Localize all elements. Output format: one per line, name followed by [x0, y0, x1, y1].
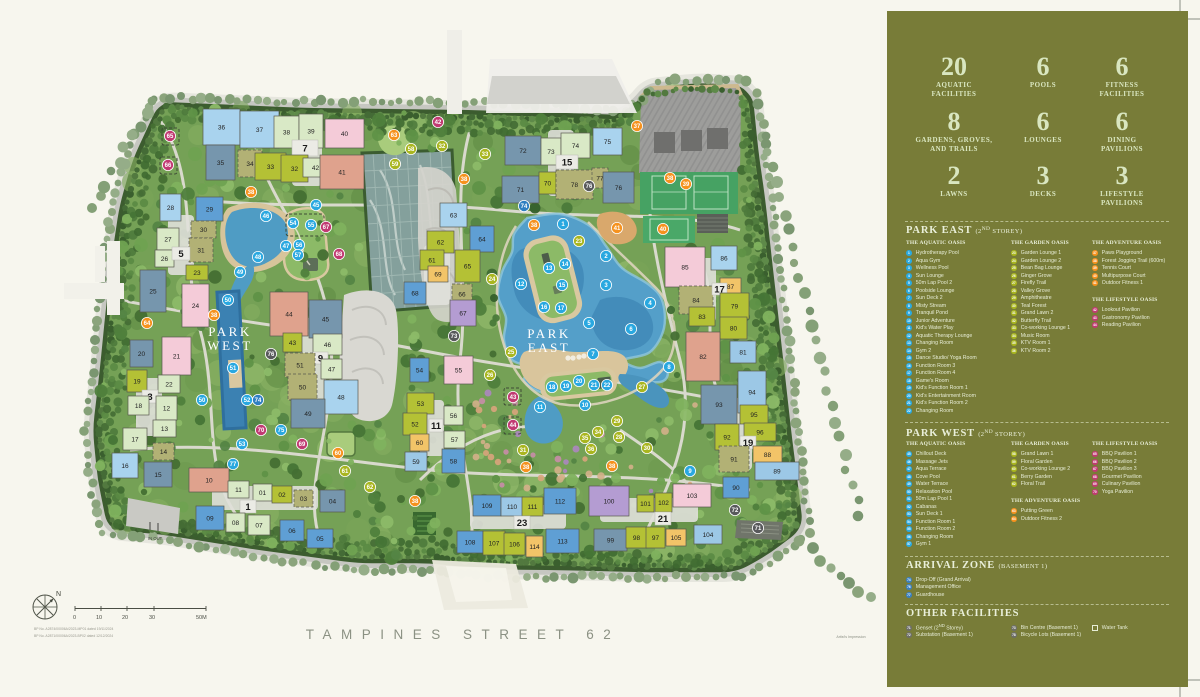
svg-text:IN OUT: IN OUT: [148, 536, 163, 541]
svg-text:49: 49: [304, 411, 312, 418]
svg-text:73: 73: [547, 149, 555, 156]
svg-text:72: 72: [519, 148, 527, 155]
svg-text:BP No. A2871/00006A/2023-BP02: BP No. A2871/00006A/2023-BP02 dated 12/1…: [34, 634, 113, 638]
svg-text:31: 31: [197, 247, 205, 254]
svg-text:98: 98: [633, 535, 641, 542]
svg-text:53: 53: [417, 401, 425, 408]
svg-text:69: 69: [434, 271, 442, 278]
svg-text:14: 14: [562, 262, 569, 268]
svg-text:73: 73: [451, 334, 458, 340]
svg-text:30: 30: [644, 446, 651, 452]
svg-text:38: 38: [609, 464, 616, 470]
svg-text:27: 27: [639, 385, 646, 391]
svg-text:54: 54: [290, 221, 297, 227]
svg-text:107: 107: [489, 540, 500, 547]
svg-text:70: 70: [258, 428, 265, 434]
svg-text:105: 105: [671, 535, 682, 542]
svg-text:97: 97: [652, 535, 660, 542]
svg-text:28: 28: [167, 205, 175, 212]
svg-text:50: 50: [299, 384, 307, 391]
svg-text:09: 09: [206, 515, 214, 522]
svg-text:TAMPINES STREET 62: TAMPINES STREET 62: [306, 627, 621, 642]
svg-text:20: 20: [138, 351, 146, 358]
svg-text:60: 60: [416, 440, 424, 447]
svg-text:52: 52: [244, 398, 251, 404]
svg-text:PARK: PARK: [208, 324, 251, 339]
svg-text:93: 93: [715, 402, 723, 409]
svg-text:23: 23: [193, 270, 201, 277]
svg-text:30: 30: [200, 227, 208, 234]
svg-text:26: 26: [161, 256, 169, 263]
svg-text:33: 33: [482, 152, 489, 158]
svg-text:79: 79: [731, 303, 739, 310]
svg-text:102: 102: [658, 500, 669, 507]
svg-text:77: 77: [230, 462, 237, 468]
svg-text:07: 07: [255, 522, 263, 529]
svg-text:05: 05: [316, 536, 324, 543]
svg-text:74: 74: [255, 398, 262, 404]
svg-text:24: 24: [489, 277, 496, 283]
svg-text:51: 51: [296, 362, 304, 369]
svg-text:94: 94: [748, 389, 756, 396]
svg-text:86: 86: [720, 255, 728, 262]
svg-text:34: 34: [595, 430, 602, 436]
svg-text:88: 88: [764, 452, 772, 459]
svg-text:61: 61: [428, 257, 436, 264]
svg-text:12: 12: [163, 405, 171, 412]
svg-text:33: 33: [267, 164, 275, 171]
svg-text:66: 66: [165, 163, 172, 169]
svg-text:71: 71: [517, 187, 525, 194]
svg-text:78: 78: [571, 182, 579, 189]
svg-text:29: 29: [614, 419, 621, 425]
svg-text:65: 65: [464, 263, 472, 270]
svg-text:91: 91: [730, 456, 738, 463]
svg-text:58: 58: [408, 147, 415, 153]
svg-text:11: 11: [235, 487, 242, 494]
svg-text:76: 76: [615, 185, 623, 192]
svg-text:13: 13: [161, 426, 169, 433]
svg-text:76: 76: [586, 184, 593, 190]
svg-text:5: 5: [178, 249, 184, 260]
svg-text:15: 15: [154, 472, 162, 479]
svg-text:55: 55: [308, 223, 315, 229]
svg-text:64: 64: [144, 321, 151, 327]
svg-text:16: 16: [121, 463, 129, 470]
svg-text:16: 16: [541, 305, 548, 311]
svg-text:47: 47: [328, 366, 336, 373]
svg-text:15: 15: [562, 157, 573, 168]
svg-text:75: 75: [604, 139, 612, 146]
svg-text:20: 20: [576, 379, 583, 385]
svg-text:44: 44: [285, 311, 293, 318]
svg-text:38: 38: [531, 223, 538, 229]
svg-text:10: 10: [205, 477, 213, 484]
svg-text:68: 68: [411, 290, 419, 297]
svg-text:100: 100: [604, 498, 615, 505]
svg-text:62: 62: [437, 239, 445, 246]
svg-text:80: 80: [730, 325, 738, 332]
svg-text:41: 41: [338, 169, 346, 176]
svg-text:109: 109: [482, 503, 493, 510]
svg-text:40: 40: [341, 131, 349, 138]
svg-text:Artist's Impression: Artist's Impression: [836, 635, 865, 639]
svg-text:51: 51: [230, 366, 237, 372]
svg-text:84: 84: [692, 297, 700, 304]
svg-text:06: 06: [288, 528, 296, 535]
svg-text:92: 92: [723, 434, 731, 441]
svg-text:37: 37: [256, 127, 264, 134]
svg-text:38: 38: [211, 313, 218, 319]
svg-text:32: 32: [439, 144, 446, 150]
svg-text:66: 66: [458, 291, 466, 298]
svg-text:28: 28: [616, 435, 623, 441]
svg-text:41: 41: [614, 226, 621, 232]
svg-text:17: 17: [558, 306, 565, 312]
svg-text:38: 38: [523, 465, 530, 471]
svg-text:64: 64: [478, 236, 486, 243]
svg-text:69: 69: [299, 442, 306, 448]
svg-text:67: 67: [323, 225, 330, 231]
svg-text:90: 90: [732, 485, 740, 492]
svg-text:108: 108: [465, 539, 476, 546]
svg-text:7: 7: [302, 143, 307, 154]
svg-text:114: 114: [529, 544, 540, 551]
svg-text:1: 1: [245, 502, 251, 513]
svg-text:39: 39: [307, 128, 315, 135]
svg-text:67: 67: [459, 310, 467, 317]
svg-text:76: 76: [268, 352, 275, 358]
svg-text:83: 83: [698, 314, 706, 321]
svg-text:30: 30: [149, 615, 155, 621]
svg-text:113: 113: [557, 538, 568, 545]
svg-text:75: 75: [278, 428, 285, 434]
svg-text:03: 03: [300, 496, 308, 503]
svg-text:50: 50: [225, 298, 232, 304]
svg-text:45: 45: [313, 203, 320, 209]
svg-text:11: 11: [431, 421, 442, 432]
svg-text:10: 10: [582, 403, 589, 409]
svg-text:22: 22: [604, 383, 611, 389]
svg-text:N: N: [56, 591, 61, 598]
svg-text:25: 25: [149, 288, 157, 295]
svg-text:44: 44: [510, 423, 517, 429]
svg-text:18: 18: [135, 403, 143, 410]
svg-text:46: 46: [324, 342, 332, 349]
svg-text:19: 19: [133, 378, 141, 385]
svg-text:36: 36: [588, 447, 595, 453]
svg-text:46: 46: [263, 214, 270, 220]
svg-text:17: 17: [131, 436, 139, 443]
svg-text:65: 65: [167, 134, 174, 140]
svg-text:60: 60: [335, 451, 342, 457]
svg-text:62: 62: [367, 485, 374, 491]
svg-text:0: 0: [73, 615, 76, 621]
svg-text:59: 59: [392, 162, 399, 168]
svg-text:56: 56: [450, 413, 458, 420]
svg-text:02: 02: [278, 492, 286, 499]
svg-text:50M: 50M: [196, 615, 207, 621]
svg-text:42: 42: [312, 165, 320, 172]
svg-text:14: 14: [160, 449, 168, 456]
svg-text:70: 70: [544, 180, 552, 187]
svg-text:WEST: WEST: [207, 338, 252, 353]
svg-text:54: 54: [416, 367, 424, 374]
svg-text:34: 34: [246, 161, 254, 168]
svg-text:11: 11: [537, 405, 544, 411]
svg-text:21: 21: [173, 353, 181, 360]
svg-text:58: 58: [450, 458, 458, 465]
svg-text:61: 61: [342, 469, 349, 475]
svg-text:55: 55: [455, 367, 463, 374]
svg-text:95: 95: [750, 412, 758, 419]
svg-text:74: 74: [572, 143, 580, 150]
svg-text:35: 35: [582, 436, 589, 442]
svg-text:85: 85: [681, 264, 689, 271]
svg-text:63: 63: [391, 133, 398, 139]
svg-text:32: 32: [291, 166, 299, 173]
svg-text:21: 21: [591, 383, 598, 389]
svg-text:50: 50: [199, 398, 206, 404]
svg-text:111: 111: [528, 504, 538, 511]
svg-text:112: 112: [555, 498, 566, 505]
svg-text:63: 63: [450, 212, 458, 219]
svg-text:38: 38: [667, 176, 674, 182]
svg-text:48: 48: [255, 255, 262, 261]
svg-text:38: 38: [283, 129, 291, 136]
svg-text:74: 74: [521, 204, 528, 210]
svg-text:38: 38: [412, 499, 419, 505]
svg-text:101: 101: [640, 501, 651, 508]
svg-text:42: 42: [435, 120, 442, 126]
svg-text:08: 08: [232, 520, 240, 527]
svg-text:36: 36: [218, 124, 226, 131]
svg-text:39: 39: [683, 182, 690, 188]
svg-text:68: 68: [336, 252, 343, 258]
svg-text:52: 52: [411, 421, 419, 428]
svg-text:04: 04: [329, 498, 337, 505]
svg-text:35: 35: [217, 160, 225, 167]
svg-text:47: 47: [283, 244, 290, 250]
svg-text:38: 38: [248, 190, 255, 196]
svg-text:24: 24: [192, 303, 200, 310]
svg-text:29: 29: [206, 206, 214, 213]
svg-text:43: 43: [289, 340, 297, 347]
svg-text:89: 89: [773, 468, 781, 475]
svg-text:53: 53: [239, 442, 246, 448]
svg-text:110: 110: [507, 504, 518, 511]
svg-text:01: 01: [259, 490, 267, 497]
svg-text:BP No. A2874/00006A/2023-MP01: BP No. A2874/00006A/2023-MP01 dated 19/1…: [34, 627, 114, 631]
svg-text:13: 13: [546, 266, 553, 272]
svg-text:22: 22: [165, 381, 173, 388]
svg-text:19: 19: [563, 384, 570, 390]
svg-text:40: 40: [660, 227, 667, 233]
svg-text:81: 81: [739, 349, 747, 356]
svg-text:21: 21: [658, 514, 669, 525]
svg-text:71: 71: [755, 526, 762, 532]
svg-text:96: 96: [756, 429, 764, 436]
svg-text:23: 23: [576, 239, 583, 245]
svg-text:59: 59: [412, 459, 420, 466]
svg-text:15: 15: [559, 283, 566, 289]
svg-text:56: 56: [296, 243, 303, 249]
svg-text:27: 27: [164, 236, 172, 243]
svg-text:99: 99: [607, 537, 615, 544]
svg-text:72: 72: [732, 508, 739, 514]
svg-text:18: 18: [549, 385, 556, 391]
svg-text:12: 12: [518, 282, 525, 288]
svg-text:26: 26: [487, 373, 494, 379]
svg-text:104: 104: [703, 532, 714, 539]
svg-text:38: 38: [461, 177, 468, 183]
svg-text:57: 57: [295, 253, 302, 259]
svg-text:57: 57: [451, 437, 459, 444]
svg-text:PARK: PARK: [527, 326, 570, 341]
svg-text:106: 106: [509, 541, 520, 548]
svg-text:10: 10: [96, 615, 102, 621]
svg-text:EAST: EAST: [528, 340, 571, 355]
svg-text:37: 37: [634, 124, 641, 130]
svg-text:103: 103: [687, 493, 698, 500]
svg-text:82: 82: [699, 354, 707, 361]
svg-text:45: 45: [322, 316, 330, 323]
svg-text:87: 87: [727, 284, 735, 291]
svg-text:49: 49: [237, 270, 244, 276]
svg-text:31: 31: [520, 448, 527, 454]
svg-text:48: 48: [337, 394, 345, 401]
svg-text:25: 25: [508, 350, 515, 356]
svg-text:43: 43: [510, 395, 517, 401]
svg-text:20: 20: [122, 615, 128, 621]
svg-text:23: 23: [517, 518, 528, 529]
